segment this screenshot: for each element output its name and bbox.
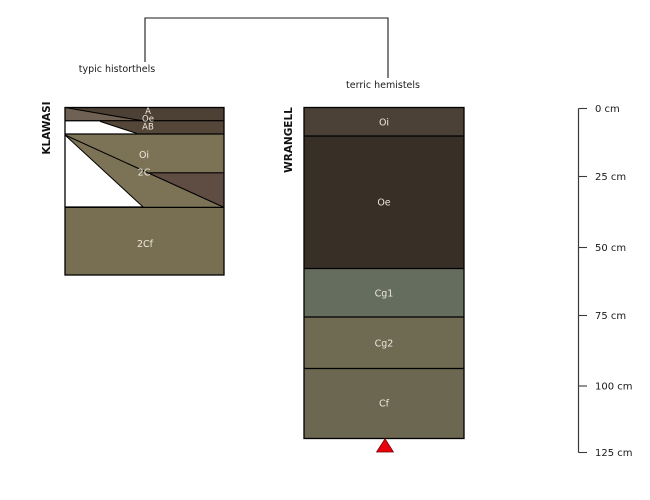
klawasi-profile: A Oe AB Oi 2C 2Cf KLAWASI <box>41 101 224 275</box>
klawasi-label-ab: AB <box>142 123 154 133</box>
figure-canvas: typic historthels terric hemistels A Oe … <box>0 0 650 500</box>
klawasi-label-2cf: 2Cf <box>137 239 154 250</box>
depth-label-50: 50 cm <box>595 243 626 254</box>
depth-scale: 0 cm 25 cm 50 cm 75 cm 100 cm 125 cm <box>579 104 633 459</box>
klawasi-label-2c: 2C <box>138 168 151 179</box>
classification-bracket <box>145 18 388 78</box>
wrangell-label-cg1: Cg1 <box>375 289 394 300</box>
klawasi-label-oi: Oi <box>139 150 149 161</box>
soil-profile-figure: typic historthels terric hemistels A Oe … <box>0 0 650 500</box>
wrangell-profile-name: WRANGELL <box>283 107 295 173</box>
wrangell-label-cg2: Cg2 <box>375 339 394 350</box>
depth-label-0: 0 cm <box>595 104 620 115</box>
depth-label-25: 25 cm <box>595 172 626 183</box>
depth-label-75: 75 cm <box>595 311 626 322</box>
classification-label-right: terric hemistels <box>346 80 420 91</box>
wrangell-label-oi: Oi <box>379 118 389 129</box>
depth-label-125: 125 cm <box>595 448 633 459</box>
depth-label-100: 100 cm <box>595 382 633 393</box>
wrangell-label-cf: Cf <box>379 399 390 410</box>
klawasi-profile-name: KLAWASI <box>41 101 53 154</box>
wrangell-profile: Oi Oe Cg1 Cg2 Cf WRANGELL <box>283 107 464 452</box>
wrangell-label-oe: Oe <box>377 198 390 209</box>
permafrost-marker-triangle-icon <box>377 439 394 452</box>
classification-label-left: typic historthels <box>79 64 156 75</box>
